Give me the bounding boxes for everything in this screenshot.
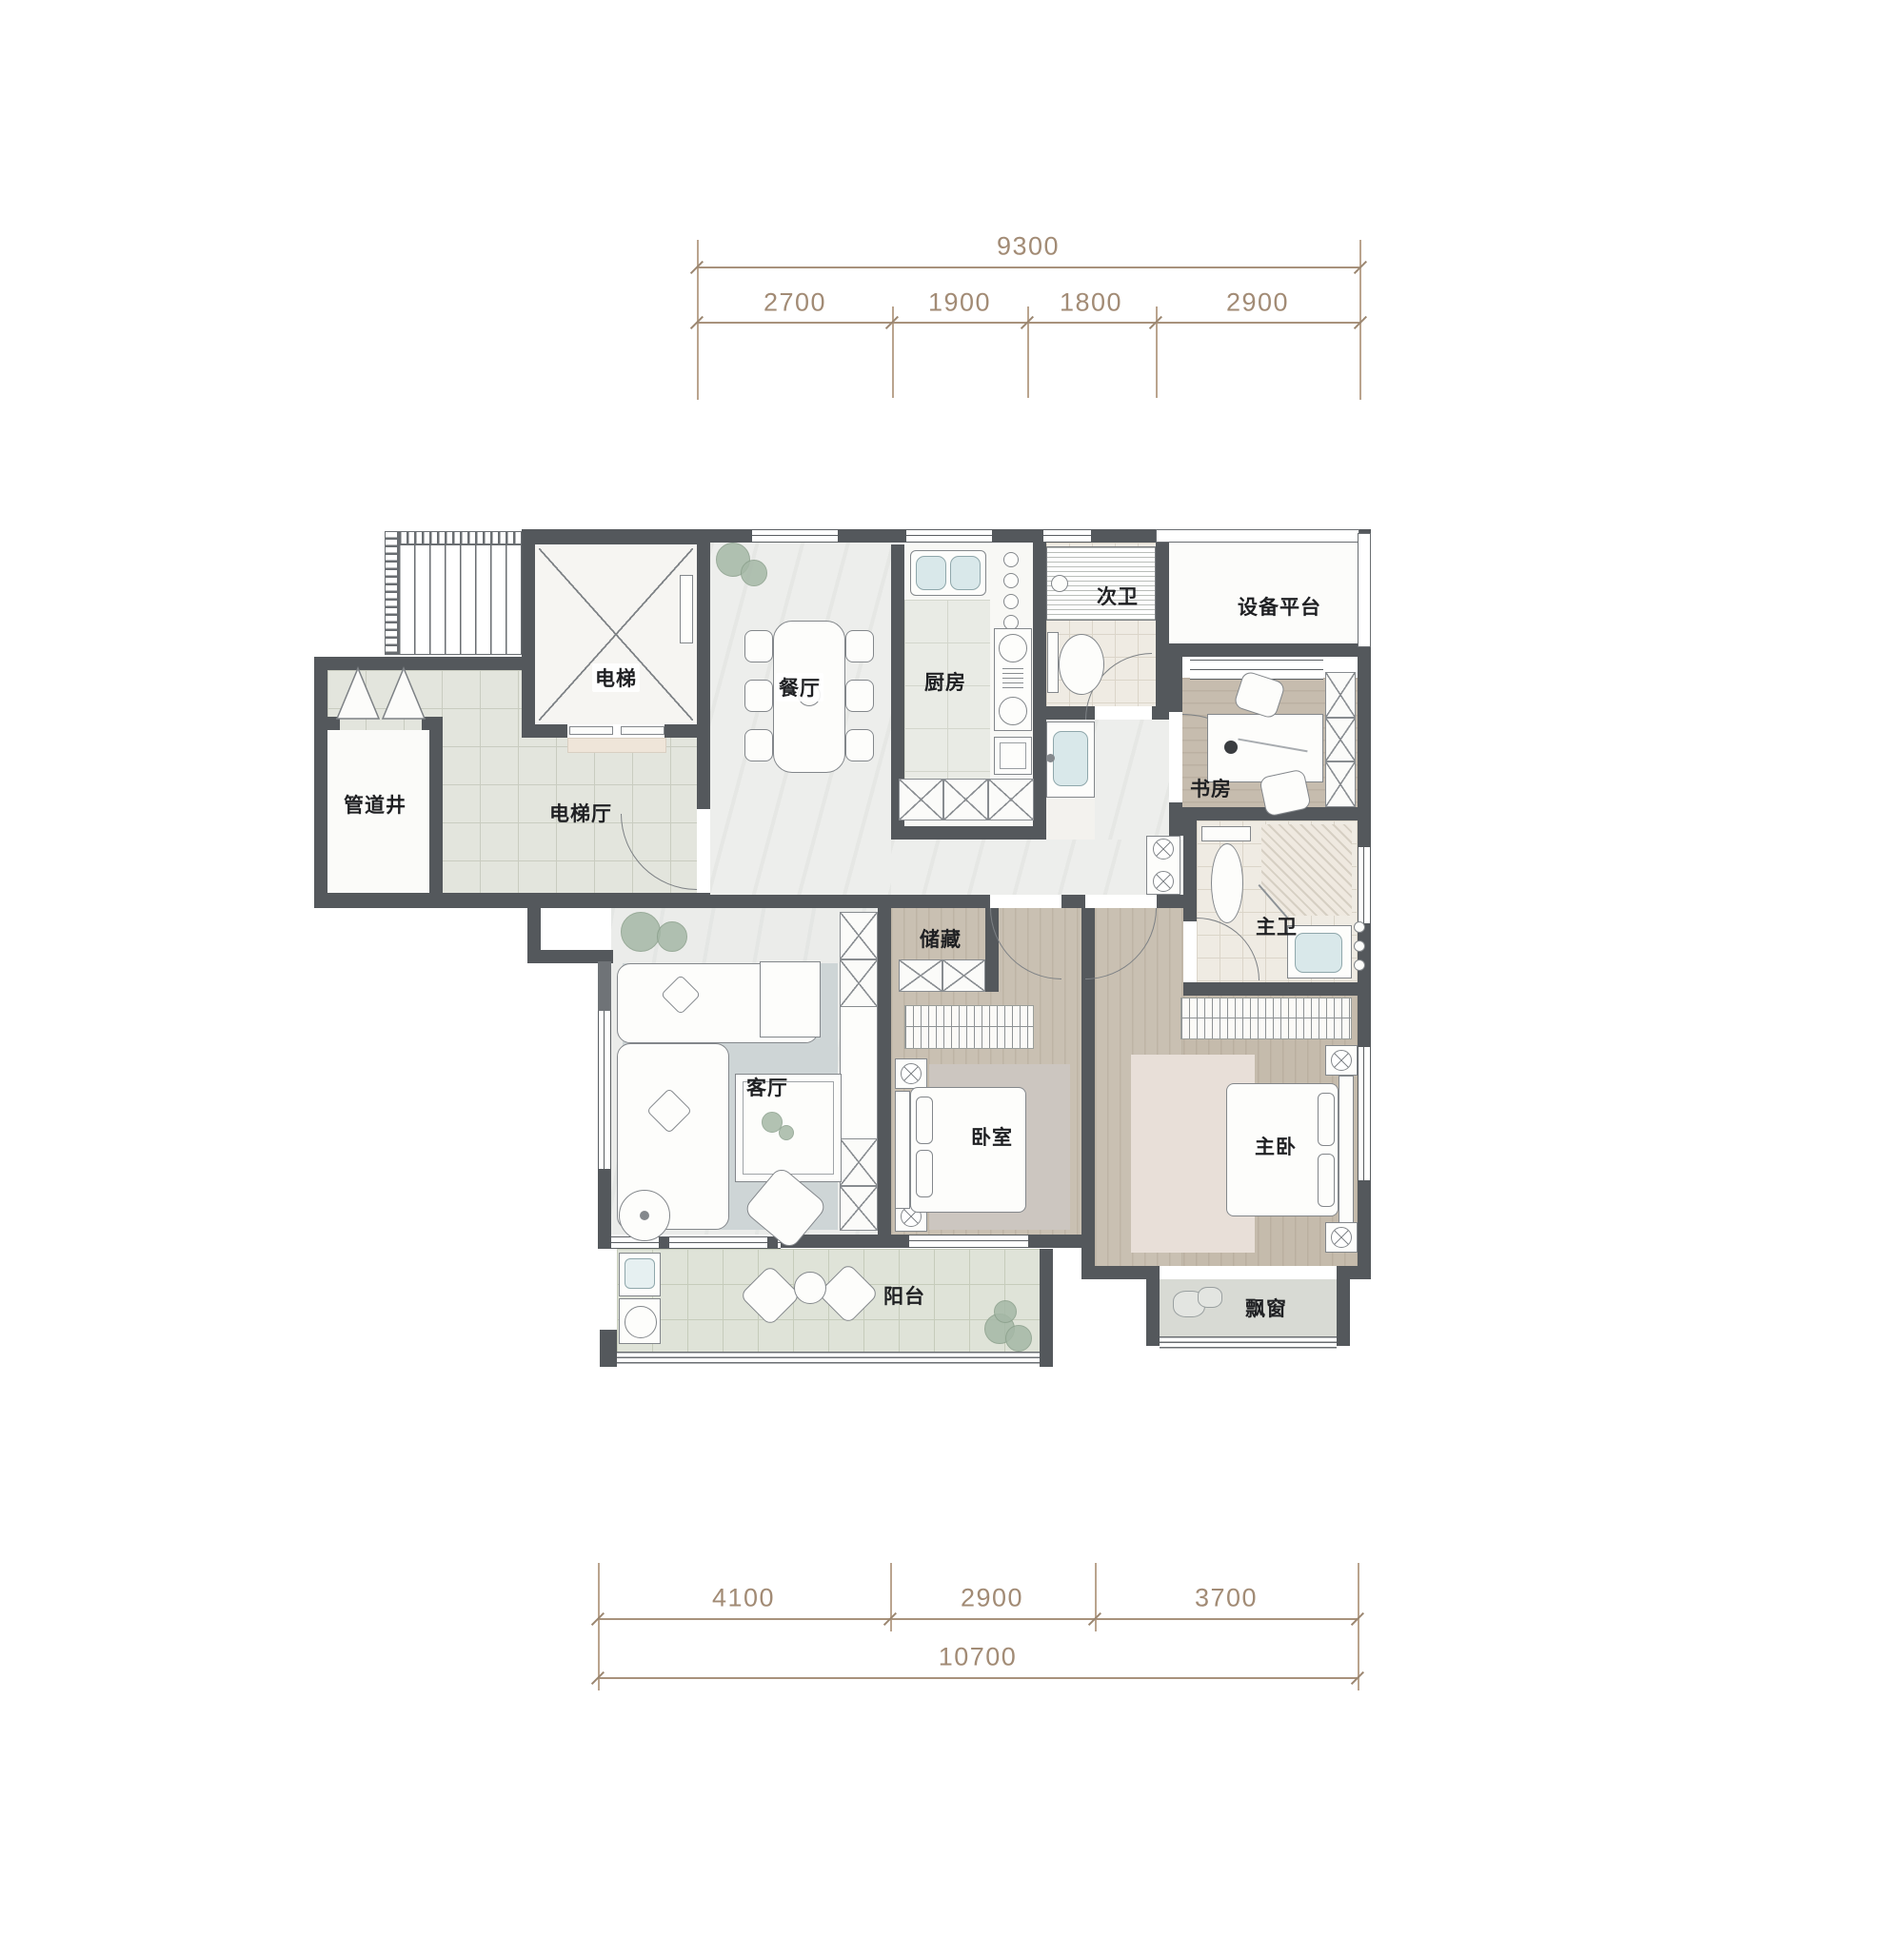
- wardrobe-hangers: [1180, 998, 1352, 1039]
- pillow: [1318, 1093, 1335, 1146]
- room-label-bath2: 次卫: [1097, 582, 1139, 610]
- hook-icon: [1354, 940, 1365, 952]
- wall: [1040, 1249, 1053, 1367]
- dining-chair: [845, 680, 874, 712]
- hook-icon: [1354, 921, 1365, 933]
- cabinet: [840, 912, 878, 959]
- wall: [697, 738, 710, 809]
- toilet-bowl: [1211, 843, 1243, 923]
- wall: [891, 826, 1046, 840]
- dining-chair: [744, 680, 773, 712]
- wall: [1152, 706, 1169, 720]
- wall: [314, 893, 710, 908]
- bed-headboard: [1339, 1076, 1354, 1224]
- wall: [1156, 643, 1359, 657]
- vanity-basin: [1295, 933, 1342, 973]
- storage-cabinet: [942, 959, 985, 992]
- wall: [1337, 1279, 1350, 1346]
- wall: [1081, 1266, 1160, 1279]
- wall: [598, 1169, 611, 1249]
- dim-seg: 1900: [928, 288, 991, 318]
- pillow: [916, 1150, 933, 1197]
- plant-icon: [741, 560, 767, 586]
- toilet-tank: [1201, 826, 1251, 841]
- dining-chair: [845, 630, 874, 662]
- room-label-elevator: 电梯: [592, 663, 640, 692]
- wall: [1033, 529, 1046, 840]
- window: [598, 1011, 611, 1169]
- room-label-bay-window: 飘窗: [1245, 1294, 1287, 1322]
- wall: [1169, 820, 1183, 836]
- room-label-equipment: 设备平台: [1238, 592, 1321, 621]
- cabinet: [988, 779, 1034, 820]
- wall: [600, 1330, 617, 1367]
- plant-icon: [1005, 1325, 1032, 1352]
- extension-line: [1358, 1563, 1359, 1690]
- elevator-cross-icon: [539, 548, 693, 721]
- plant-icon: [657, 921, 687, 952]
- window: [752, 529, 838, 543]
- toilet-tank: [1047, 632, 1059, 693]
- desk-knob: [1224, 741, 1238, 754]
- room-label-dining: 餐厅: [776, 673, 823, 702]
- room-label-master-bath: 主卫: [1256, 912, 1298, 940]
- room-label-elevator-hall: 电梯厅: [549, 799, 612, 827]
- laundry-basin: [625, 1258, 655, 1289]
- pillow: [916, 1097, 933, 1144]
- wall: [522, 531, 710, 544]
- dining-chair: [744, 630, 773, 662]
- faucet-icon: [1051, 575, 1068, 592]
- dimension-line: [598, 1677, 1358, 1679]
- floor-plan-canvas: 电梯 管道井 电梯厅 餐厅 厨房 次卫 设备平台 书房 主卫 储藏 客厅 卧室 …: [0, 0, 1904, 1937]
- bay-window-railing: [1160, 1336, 1337, 1352]
- wall: [522, 531, 535, 738]
- room-label-bedroom: 卧室: [971, 1122, 1013, 1151]
- dishwasher-door: [1000, 742, 1026, 769]
- elevator-door-panel: [569, 726, 613, 735]
- equipment-platform-edge: [1358, 533, 1371, 647]
- cabinet: [840, 1138, 878, 1186]
- pipe-icon: [1003, 552, 1019, 567]
- louver-panel: [398, 544, 522, 655]
- wall: [1156, 529, 1169, 706]
- dim-seg: 2700: [764, 288, 826, 318]
- cabinet: [1325, 761, 1356, 807]
- plant-icon: [994, 1300, 1017, 1323]
- extension-line: [890, 1563, 892, 1631]
- burner-icon: [999, 697, 1027, 725]
- window: [906, 529, 992, 543]
- dimension-line: [598, 1618, 1358, 1620]
- washer-drum: [625, 1306, 657, 1338]
- ceiling-lamp-icon: [1153, 871, 1174, 892]
- balcony-railing: [617, 1352, 1040, 1367]
- plant-icon: [779, 1125, 794, 1140]
- dim-seg: 4100: [712, 1584, 775, 1613]
- wall: [598, 961, 611, 1011]
- dim-seg: 2900: [961, 1584, 1023, 1613]
- hook-icon: [1354, 959, 1365, 971]
- pipe-icon: [1003, 573, 1019, 588]
- corridor-floor: [891, 840, 1183, 895]
- elevator-door-panel: [621, 726, 664, 735]
- cabinet: [1325, 718, 1356, 761]
- dim-seg: 1800: [1060, 288, 1122, 318]
- dim-seg: 3700: [1195, 1584, 1258, 1613]
- wall: [1337, 1266, 1371, 1279]
- wall: [1183, 820, 1197, 921]
- sink-bowl: [916, 556, 946, 590]
- cabinet: [943, 779, 988, 820]
- pipe-icon: [1003, 594, 1019, 609]
- ceiling-lamp-icon: [1153, 839, 1174, 860]
- bed-headboard: [895, 1091, 910, 1209]
- pipe-shaft-doors-icon: [335, 666, 426, 720]
- wall: [1061, 895, 1085, 908]
- toilet-bowl: [1059, 634, 1104, 695]
- storage-cabinet: [899, 959, 942, 992]
- stove-grill: [1002, 668, 1023, 691]
- wall: [429, 717, 443, 893]
- wall: [878, 908, 891, 1235]
- elevator-sill: [567, 738, 666, 753]
- ceiling-lamp-icon: [901, 1063, 922, 1084]
- elevator-counterweight: [680, 575, 693, 643]
- balcony-table: [794, 1272, 826, 1304]
- cabinet: [899, 779, 943, 820]
- wall: [1146, 1279, 1160, 1346]
- window: [909, 1235, 1028, 1248]
- washstand-basin: [1053, 731, 1088, 786]
- dining-chair: [744, 729, 773, 761]
- wall: [1183, 982, 1371, 996]
- wall: [522, 724, 567, 738]
- room-label-storage: 储藏: [920, 924, 962, 953]
- wall: [1157, 895, 1183, 908]
- rock-decor: [1198, 1287, 1222, 1308]
- dim-total-bottom: 10700: [939, 1643, 1018, 1672]
- cabinet: [1325, 672, 1356, 718]
- plant-icon: [621, 912, 661, 952]
- burner-icon: [999, 634, 1027, 662]
- floor-lamp-center: [640, 1211, 649, 1220]
- equipment-platform-edge: [1156, 529, 1359, 543]
- faucet-icon: [1046, 754, 1055, 762]
- cabinet: [840, 959, 878, 1007]
- slider-stop: [659, 1237, 669, 1248]
- dining-chair: [845, 729, 874, 761]
- dim-total-top: 9300: [997, 232, 1060, 262]
- ceiling-lamp-icon: [1331, 1050, 1352, 1071]
- wall: [314, 657, 327, 906]
- corridor-branch-floor: [1095, 720, 1169, 840]
- ceiling-lamp-icon: [1331, 1227, 1352, 1248]
- window: [1043, 529, 1091, 543]
- wall: [664, 724, 710, 738]
- cabinet: [840, 1186, 878, 1231]
- wardrobe-hangers: [904, 1005, 1034, 1049]
- dimension-line: [697, 267, 1360, 268]
- room-label-study: 书房: [1190, 774, 1232, 802]
- hatch-strip-left: [385, 531, 398, 655]
- window: [1358, 847, 1371, 923]
- sink-bowl: [950, 556, 981, 590]
- room-label-balcony: 阳台: [883, 1281, 925, 1310]
- wall: [710, 895, 990, 908]
- room-label-pipe-shaft: 管道井: [344, 790, 407, 819]
- hatch-strip-top: [398, 531, 522, 544]
- wall: [1169, 657, 1182, 712]
- room-label-kitchen: 厨房: [924, 667, 966, 696]
- extension-line: [598, 1563, 600, 1690]
- pillow: [1318, 1154, 1335, 1207]
- window: [1358, 1047, 1371, 1180]
- room-label-living: 客厅: [746, 1073, 788, 1101]
- side-table: [760, 961, 821, 1038]
- room-label-master-bedroom: 主卧: [1255, 1132, 1297, 1160]
- extension-line: [1095, 1563, 1097, 1631]
- dim-seg: 2900: [1226, 288, 1289, 318]
- wall: [697, 531, 710, 738]
